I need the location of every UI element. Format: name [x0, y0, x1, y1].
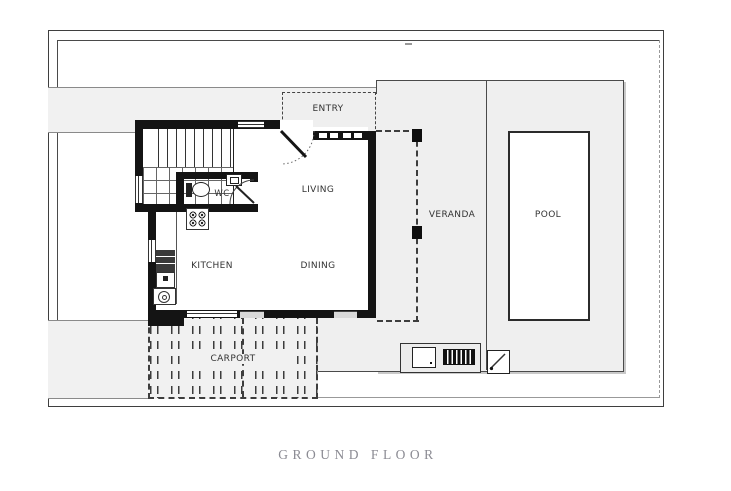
window-top	[238, 121, 264, 128]
wall-corner-block	[148, 310, 184, 326]
terrace-connector	[316, 318, 378, 372]
carport-paving: CARPORT	[148, 318, 318, 399]
property-line-top	[57, 40, 660, 41]
meter-box-icon	[412, 347, 436, 368]
window-entry-1	[319, 133, 338, 138]
property-line-right-dashed	[659, 40, 660, 398]
entry-label: ENTRY	[312, 104, 343, 114]
stove-icon	[186, 208, 209, 230]
window-left-wall	[135, 176, 143, 203]
toilet-icon	[192, 182, 210, 197]
wall-right	[368, 140, 376, 318]
pool-rect	[508, 131, 590, 321]
exterior-step-2	[334, 311, 357, 318]
kitchen-label: KITCHEN	[191, 261, 233, 271]
wc-label: WC	[214, 189, 229, 199]
yard-left-edge-stub	[376, 80, 377, 94]
stairs-banister	[233, 129, 234, 207]
kitchen-sink-icon	[156, 272, 175, 288]
property-line-left-upper	[57, 40, 58, 87]
veranda-post-north	[412, 129, 422, 142]
washer-drum-icon	[158, 291, 170, 303]
window-kitchen	[148, 240, 156, 262]
counter-edge	[176, 212, 177, 304]
wall-wc-right	[250, 172, 258, 182]
north-tick	[405, 43, 412, 45]
veranda-roofline-bottom	[377, 320, 419, 322]
washer-icon	[153, 288, 176, 305]
pool-zone-divider	[486, 80, 487, 370]
floor-plan-canvas: POOL VERANDA CARPORT ENTRY WC	[0, 0, 731, 491]
basin-icon	[226, 174, 242, 186]
window-bottom-wall	[187, 311, 237, 317]
sheet-caption: GROUND FLOOR	[278, 447, 437, 463]
hvac-unit-icon	[443, 349, 475, 365]
carport-label: CARPORT	[180, 354, 286, 364]
exterior-step-1	[240, 311, 264, 318]
pool-label: POOL	[535, 210, 561, 220]
outdoor-shower-icon	[487, 350, 510, 374]
wall-wc-top	[176, 172, 258, 179]
stairs-upper-flight	[158, 129, 233, 168]
window-entry-2	[343, 133, 362, 138]
property-line-left-lower	[57, 131, 58, 320]
living-label: LIVING	[302, 185, 335, 195]
veranda-label: VERANDA	[429, 210, 475, 220]
veranda-post-south	[412, 226, 422, 239]
dining-label: DINING	[300, 261, 335, 271]
fridge-icon	[156, 250, 175, 272]
entry-threshold	[280, 120, 313, 140]
